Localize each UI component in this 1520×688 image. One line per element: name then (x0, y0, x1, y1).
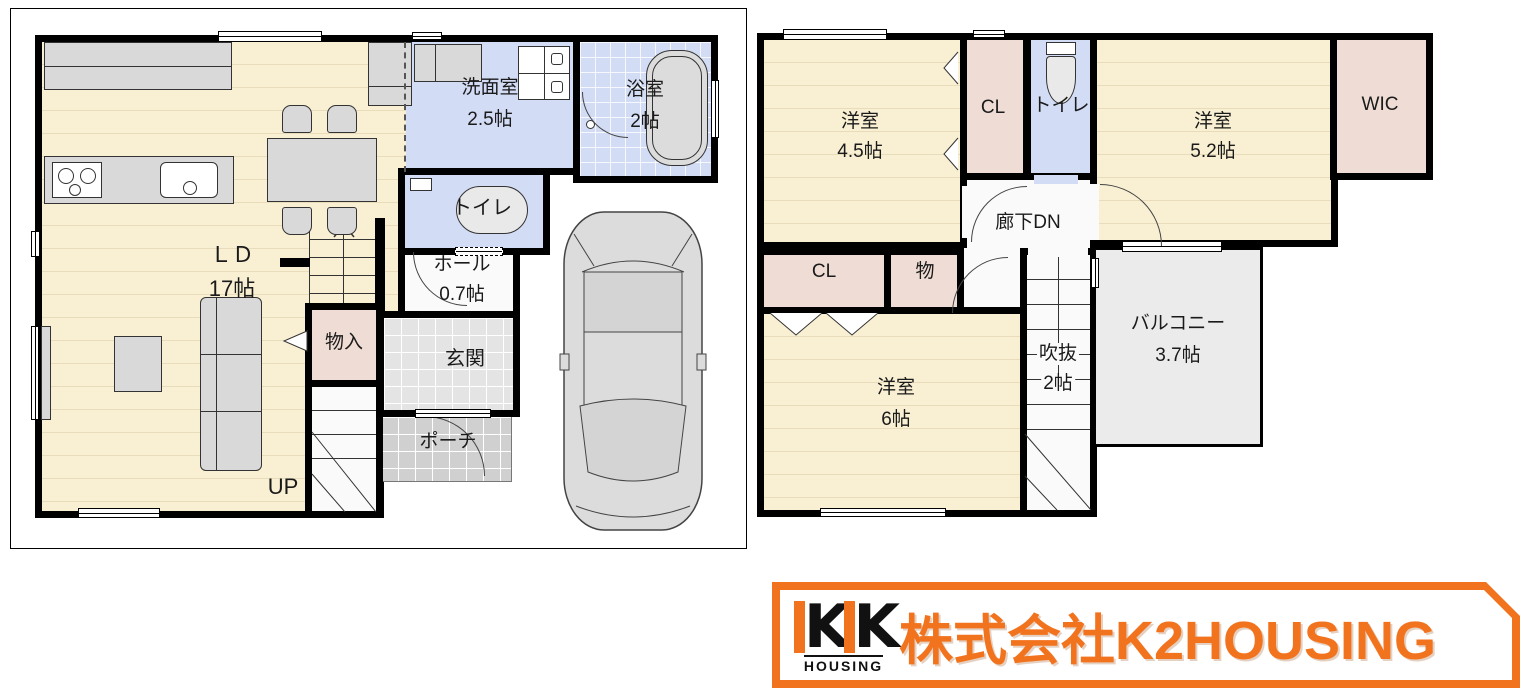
room-label: バルコニー (1131, 314, 1226, 334)
vanity-sink (518, 46, 570, 100)
closet-folding-door-marks (768, 312, 884, 338)
wall-stub (280, 258, 310, 267)
room-label: トイレ (1032, 96, 1089, 116)
room-size-label: 3.7帖 (1155, 346, 1200, 366)
dining-chair (282, 105, 312, 133)
kk-housing-text: HOUSING (804, 655, 883, 674)
door-opening (968, 248, 1018, 257)
window (973, 30, 1005, 38)
room-size-label: 2帖 (1041, 373, 1075, 395)
room-size-label: 5.2帖 (1190, 142, 1235, 162)
window (412, 32, 442, 40)
room-label: 洗面室 (461, 78, 518, 98)
window (1091, 258, 1099, 288)
room-size-label: 2.5帖 (467, 110, 512, 130)
toilet-cistern (1046, 42, 1076, 55)
kk-logo-mark: K K HOUSING (794, 597, 893, 674)
bathtub (646, 50, 708, 166)
car (560, 206, 706, 536)
dining-chair (327, 105, 357, 133)
room-label: 洋室 (877, 378, 915, 398)
company-logo-inner: K K HOUSING 株式会社K2HOUSING (780, 590, 1512, 680)
door-opening (1090, 184, 1099, 240)
stairs-direction-label: UP (268, 475, 299, 498)
stair-opening (1028, 246, 1088, 257)
window (783, 29, 887, 40)
kk-letter: K (854, 601, 898, 653)
room-label: CL (981, 98, 1005, 118)
coffee-table (114, 336, 162, 392)
room-size-label: 17帖 (209, 277, 255, 300)
kitchen-washroom-dashed-divider (404, 42, 406, 172)
kk-letter: K (804, 601, 848, 653)
window (31, 231, 40, 257)
dining-table (267, 138, 377, 202)
room-size-label: 2帖 (630, 112, 660, 132)
toilet-cistern (410, 178, 432, 191)
room-label: 洋室 (1194, 112, 1232, 132)
window (218, 31, 322, 42)
room-size-label: 6帖 (881, 410, 911, 430)
tv (41, 326, 51, 420)
closet-folding-door-marks (944, 52, 960, 180)
window (31, 326, 39, 420)
monoire-door-arrow (282, 330, 308, 352)
room-size-label: 0.7帖 (439, 285, 484, 305)
stairs-direction-label: DN (1033, 212, 1060, 233)
kitchen-sink (160, 162, 218, 198)
room-label: 洋室 (841, 112, 879, 132)
floor-plan-sheet: ＬＤ 17帖 洗面室 2.5帖 浴室 2帖 トイレ ホール 0.7帖 物入 玄関… (0, 0, 1520, 688)
room-label: トイレ (452, 198, 512, 219)
dining-chair (282, 207, 312, 235)
dining-chair (327, 207, 357, 235)
room-label: WIC (1362, 95, 1399, 115)
room-label: 玄関 (445, 349, 485, 370)
stairs-break-lines (312, 432, 378, 514)
room-label: ポーチ (419, 432, 476, 452)
stairs-break-lines (1025, 428, 1093, 512)
stairs-midline (1058, 255, 1059, 385)
corridor-label: 廊下DN (995, 213, 1060, 233)
door-opening (1034, 175, 1078, 184)
company-logo-banner: K K HOUSING 株式会社K2HOUSING (772, 582, 1520, 688)
kk-letters: K K (794, 597, 893, 653)
room-label: 浴室 (626, 80, 664, 100)
room-label: 物 (915, 262, 934, 282)
door-opening (962, 186, 971, 238)
window (711, 80, 719, 138)
entrance-doorway (415, 409, 491, 418)
sofa (200, 297, 262, 471)
wall-stub (375, 218, 385, 313)
company-name: 株式会社K2HOUSING (899, 596, 1436, 675)
stove (52, 162, 102, 198)
room-label: CL (812, 262, 836, 282)
room-label: 廊下 (995, 212, 1033, 233)
room-size-label: 4.5帖 (837, 142, 882, 162)
room-label: ホール (433, 255, 490, 275)
room-label: 吹抜 (1037, 343, 1079, 365)
window (78, 508, 160, 518)
room-label: ＬＤ (210, 243, 254, 266)
window (820, 508, 946, 517)
kitchen-cabinet (44, 42, 232, 90)
room-label: 物入 (325, 333, 363, 353)
